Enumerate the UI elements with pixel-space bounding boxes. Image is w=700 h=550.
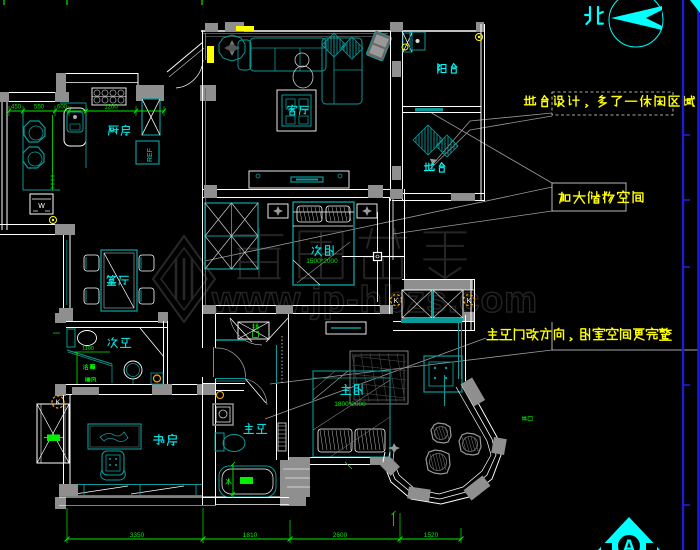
svg-text:K: K xyxy=(467,298,472,305)
svg-text:1500*2000: 1500*2000 xyxy=(306,258,338,265)
svg-text:2600: 2600 xyxy=(333,532,348,539)
svg-text:1800*2000: 1800*2000 xyxy=(334,401,366,408)
svg-text:600: 600 xyxy=(57,105,68,111)
svg-text:1100: 1100 xyxy=(82,346,94,352)
svg-text:REF: REF xyxy=(147,148,154,162)
svg-text:W: W xyxy=(38,203,45,210)
svg-text:1200: 1200 xyxy=(104,105,118,111)
svg-text:K: K xyxy=(394,298,399,305)
svg-text:3350: 3350 xyxy=(130,532,145,539)
svg-text:450: 450 xyxy=(11,105,22,111)
svg-text:550: 550 xyxy=(34,105,45,111)
svg-text:A: A xyxy=(622,537,636,550)
svg-text:K: K xyxy=(56,400,61,407)
svg-text:1520: 1520 xyxy=(424,532,439,539)
svg-text:1810: 1810 xyxy=(243,532,258,539)
